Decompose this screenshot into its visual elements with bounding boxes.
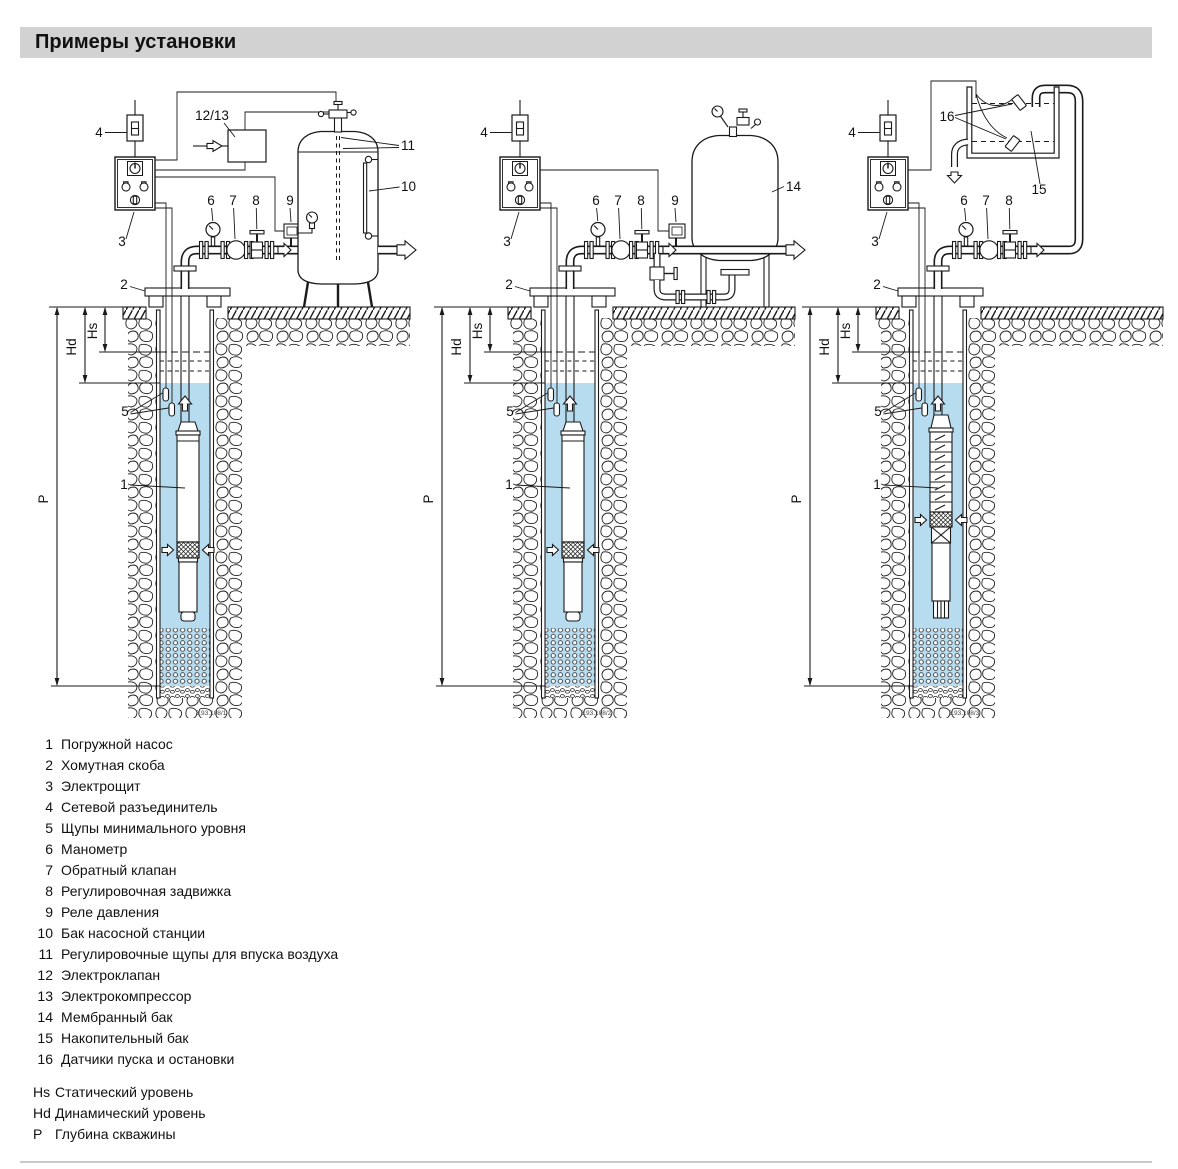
legend-item: 1Погружной насос bbox=[33, 734, 338, 755]
callout-10: 10 bbox=[401, 179, 416, 194]
callout-3: 3 bbox=[118, 234, 126, 249]
callout-15: 15 bbox=[1031, 182, 1046, 197]
legend-label: Бак насосной станции bbox=[61, 923, 205, 944]
legend-item: 14Мембранный бак bbox=[33, 1007, 338, 1028]
legend-label: Мембранный бак bbox=[61, 1007, 173, 1028]
callout-4: 4 bbox=[480, 125, 488, 140]
dim-hd: Hd bbox=[817, 338, 832, 355]
legend: 1Погружной насос 2Хомутная скоба 3Электр… bbox=[33, 734, 338, 1070]
installation-diagram-storage-tank: 4 3 6 7 8 2 5 1 16 15 Hs Hd P 3.93.108/3 bbox=[788, 70, 1178, 720]
legend-label: Щупы минимального уровня bbox=[61, 818, 246, 839]
dim-hs: Hs bbox=[838, 323, 853, 340]
callout-8: 8 bbox=[637, 193, 645, 208]
callout-7: 7 bbox=[614, 193, 622, 208]
legend-num: 9 bbox=[33, 902, 53, 923]
pump-station-tank bbox=[298, 102, 378, 308]
legend-item: 15Накопительный бак bbox=[33, 1028, 338, 1049]
legend-num: 1 bbox=[33, 734, 53, 755]
legend-label: Датчики пуска и остановки bbox=[61, 1049, 234, 1070]
installation-diagram-pump-station-tank: 4 3 12/13 6 7 8 9 2 5 1 11 10 Hs Hd P 3.… bbox=[35, 70, 425, 720]
legend-label: Хомутная скоба bbox=[61, 755, 165, 776]
tank-top-fittings bbox=[712, 106, 761, 137]
callout-9: 9 bbox=[671, 193, 679, 208]
air-intake-arrow-icon bbox=[193, 141, 228, 152]
start-stop-sensor bbox=[1012, 95, 1027, 111]
legend-label: Электроклапан bbox=[61, 965, 160, 986]
start-stop-sensor bbox=[1005, 136, 1020, 152]
callout-5: 5 bbox=[874, 404, 882, 419]
legend-label: Электрокомпрессор bbox=[61, 986, 191, 1007]
callout-11: 11 bbox=[401, 138, 415, 153]
callout-4: 4 bbox=[848, 125, 856, 140]
legend-item: 9Реле давления bbox=[33, 902, 338, 923]
legend-label: Манометр bbox=[61, 839, 127, 860]
legend-label: Погружной насос bbox=[61, 734, 173, 755]
legend-label: Сетевой разъединитель bbox=[61, 797, 218, 818]
legend-item: 11Регулировочные щупы для впуска воздуха bbox=[33, 944, 338, 965]
legend-num: 13 bbox=[33, 986, 53, 1007]
legend-item: 6Манометр bbox=[33, 839, 338, 860]
callout-9: 9 bbox=[286, 193, 294, 208]
legend-num: 2 bbox=[33, 755, 53, 776]
callout-5: 5 bbox=[506, 404, 514, 419]
legend-num: 3 bbox=[33, 776, 53, 797]
abbr-item: PГлубина скважины bbox=[33, 1124, 206, 1145]
installation-diagram-membrane-tank: 4 3 6 7 8 9 2 5 1 14 Hs Hd P 3.93.108/2 bbox=[420, 70, 810, 720]
legend-item: 4Сетевой разъединитель bbox=[33, 797, 338, 818]
abbr-item: HdДинамический уровень bbox=[33, 1103, 206, 1124]
legend-num: 6 bbox=[33, 839, 53, 860]
legend-num: 12 bbox=[33, 965, 53, 986]
figure-number: 3.93.108/3 bbox=[949, 710, 980, 717]
callout-2: 2 bbox=[120, 277, 128, 292]
legend-num: 10 bbox=[33, 923, 53, 944]
dim-p: P bbox=[36, 494, 51, 503]
legend-num: 11 bbox=[33, 944, 53, 965]
dim-hs: Hs bbox=[85, 323, 100, 340]
dim-hd: Hd bbox=[64, 338, 79, 355]
dim-p: P bbox=[789, 494, 804, 503]
legend-item: 5Щупы минимального уровня bbox=[33, 818, 338, 839]
callout-1: 1 bbox=[873, 477, 881, 492]
callout-3: 3 bbox=[503, 234, 511, 249]
callout-4: 4 bbox=[95, 125, 103, 140]
drain-down-arrow-icon bbox=[948, 172, 962, 183]
abbreviation-legend: HsСтатический уровень HdДинамический уро… bbox=[33, 1082, 206, 1145]
figure-number: 3.93.108/1 bbox=[196, 710, 227, 717]
page-title: Примеры установки bbox=[20, 27, 1152, 58]
callout-6: 6 bbox=[592, 193, 600, 208]
legend-label: Накопительный бак bbox=[61, 1028, 189, 1049]
abbr-key: Hd bbox=[33, 1103, 55, 1124]
sensor-wiring bbox=[908, 81, 976, 170]
callout-8: 8 bbox=[252, 193, 260, 208]
legend-num: 16 bbox=[33, 1049, 53, 1070]
legend-item: 7Обратный клапан bbox=[33, 860, 338, 881]
storage-tank bbox=[967, 87, 1059, 158]
callout-2: 2 bbox=[873, 277, 881, 292]
legend-item: 8Регулировочная задвижка bbox=[33, 881, 338, 902]
control-wiring bbox=[540, 170, 669, 231]
outlet-arrow-icon bbox=[397, 241, 416, 259]
legend-item: 13Электрокомпрессор bbox=[33, 986, 338, 1007]
abbr-item: HsСтатический уровень bbox=[33, 1082, 206, 1103]
tank-shutoff-valve bbox=[650, 254, 749, 304]
legend-num: 7 bbox=[33, 860, 53, 881]
legend-label: Реле давления bbox=[61, 902, 159, 923]
legend-num: 5 bbox=[33, 818, 53, 839]
legend-num: 8 bbox=[33, 881, 53, 902]
legend-item: 3Электрощит bbox=[33, 776, 338, 797]
legend-num: 15 bbox=[33, 1028, 53, 1049]
bottom-divider bbox=[20, 1161, 1152, 1163]
dim-p: P bbox=[421, 494, 436, 503]
figure-number: 3.93.108/2 bbox=[581, 710, 612, 717]
callout-2: 2 bbox=[505, 277, 513, 292]
legend-label: Регулировочные щупы для впуска воздуха bbox=[61, 944, 338, 965]
legend-label: Обратный клапан bbox=[61, 860, 176, 881]
callout-16: 16 bbox=[939, 109, 954, 124]
abbr-label: Статический уровень bbox=[55, 1082, 193, 1103]
callout-5: 5 bbox=[121, 404, 129, 419]
callout-12-13: 12/13 bbox=[195, 108, 229, 123]
tank-top-valve bbox=[318, 102, 356, 133]
abbr-label: Глубина скважины bbox=[55, 1124, 176, 1145]
legend-num: 4 bbox=[33, 797, 53, 818]
abbr-label: Динамический уровень bbox=[55, 1103, 206, 1124]
legend-num: 14 bbox=[33, 1007, 53, 1028]
legend-item: 16Датчики пуска и остановки bbox=[33, 1049, 338, 1070]
callout-7: 7 bbox=[229, 193, 237, 208]
legend-item: 2Хомутная скоба bbox=[33, 755, 338, 776]
legend-item: 10Бак насосной станции bbox=[33, 923, 338, 944]
callout-3: 3 bbox=[871, 234, 879, 249]
dim-hs: Hs bbox=[470, 323, 485, 340]
callout-7: 7 bbox=[982, 193, 990, 208]
callout-6: 6 bbox=[960, 193, 968, 208]
callout-6: 6 bbox=[207, 193, 215, 208]
legend-label: Электрощит bbox=[61, 776, 141, 797]
abbr-key: Hs bbox=[33, 1082, 55, 1103]
callout-1: 1 bbox=[505, 477, 513, 492]
abbr-key: P bbox=[33, 1124, 55, 1145]
legend-label: Регулировочная задвижка bbox=[61, 881, 231, 902]
legend-item: 12Электроклапан bbox=[33, 965, 338, 986]
dim-hd: Hd bbox=[449, 338, 464, 355]
overflow-pipe bbox=[948, 142, 969, 183]
callout-8: 8 bbox=[1005, 193, 1013, 208]
callout-1: 1 bbox=[120, 477, 128, 492]
